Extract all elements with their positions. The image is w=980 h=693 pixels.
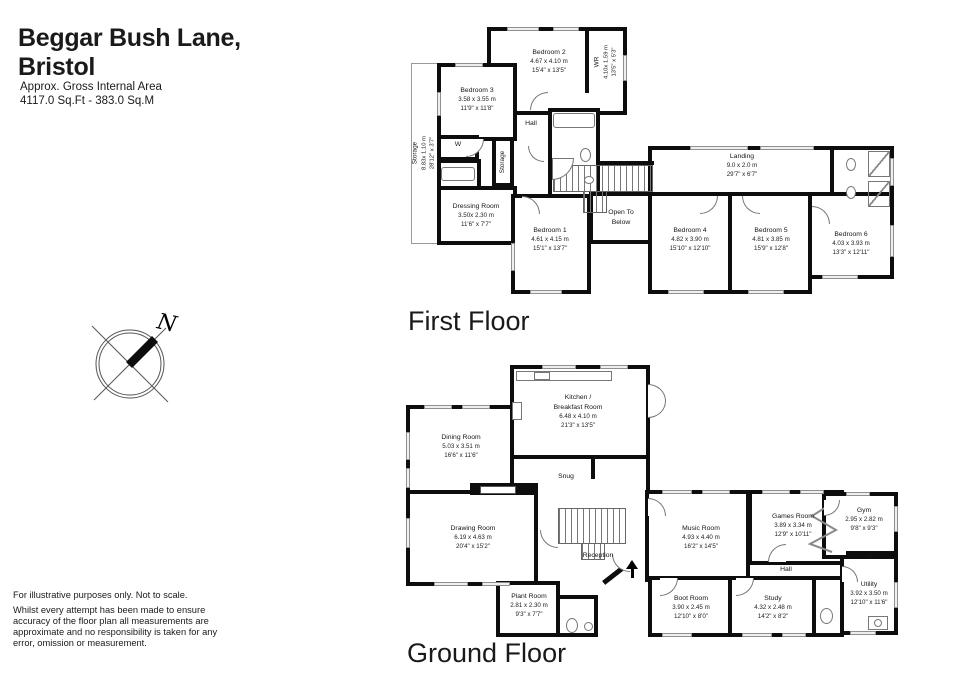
label-landing: Landing 9.0 x 2.0 m 29'7" x 6'7" <box>727 152 758 180</box>
area-subtitle-line-2: 4117.0 Sq.Ft - 383.0 Sq.M <box>20 94 162 108</box>
window <box>762 490 790 494</box>
window <box>623 55 627 81</box>
label-bedroom-5: Bedroom 5 4.81 x 3.85 m 15'9" x 12'8" <box>752 226 790 254</box>
window <box>850 631 876 635</box>
snug-wall <box>646 455 650 492</box>
label-music: Music Room 4.93 x 4.40 m 16'2" x 14'5" <box>682 524 720 552</box>
bathtub <box>441 167 475 181</box>
window <box>782 633 806 637</box>
kitchen-counter <box>516 371 612 381</box>
window <box>530 290 562 294</box>
toilet <box>566 618 578 633</box>
window <box>890 158 894 186</box>
window <box>511 243 515 271</box>
label-dining: Dining Room 5.03 x 3.51 m 16'6" x 11'6" <box>441 433 480 461</box>
entrance-arrow-icon <box>626 560 638 578</box>
window <box>462 405 490 409</box>
window <box>600 365 628 369</box>
sink <box>584 622 593 631</box>
french-door-arc <box>648 384 666 401</box>
label-open-to-below: Open To Below <box>608 208 634 228</box>
address-line-1: Beggar Bush Lane, <box>18 24 241 53</box>
room-wc-gf <box>556 595 598 637</box>
window <box>894 506 898 532</box>
label-plant: Plant Room 2.81 x 2.30 m 9'3" x 7'7" <box>510 592 548 620</box>
window <box>542 365 576 369</box>
label-wr: WR 4.10x 1.59 m 13'5" x 5'3" <box>593 45 620 79</box>
door-arc <box>528 146 544 162</box>
label-drawing: Drawing Room 6.19 x 4.63 m 20'4" x 15'2" <box>451 524 496 552</box>
bathtub <box>553 113 595 128</box>
window <box>507 27 539 31</box>
window <box>822 275 858 279</box>
label-study: Study 4.32 x 2.48 m 14'2" x 8'2" <box>754 594 792 622</box>
window <box>800 490 824 494</box>
stove <box>512 402 522 420</box>
window <box>760 146 814 150</box>
label-bedroom-4: Bedroom 4 4.82 x 3.90 m 15'10" x 12'10" <box>670 226 711 254</box>
window <box>668 290 704 294</box>
label-kitchen: Kitchen / Breakfast Room 6.48 x 4.10 m 2… <box>554 393 603 431</box>
shower-stall <box>868 151 890 177</box>
door-arc <box>540 530 558 548</box>
toilet <box>846 158 856 171</box>
label-utility: Utility 3.92 x 3.50 m 12'10" x 11'6" <box>850 580 888 608</box>
label-hall-gf: Hall <box>780 566 792 573</box>
first-floor-label: First Floor <box>408 306 530 337</box>
kitchen-sink <box>534 372 550 380</box>
window <box>846 492 870 496</box>
toilet <box>846 186 856 199</box>
area-subtitle: Approx. Gross Internal Area 4117.0 Sq.Ft… <box>20 80 162 109</box>
window <box>424 405 452 409</box>
disclaimer-body: Whilst every attempt has been made to en… <box>13 605 233 649</box>
label-bedroom-2: Bedroom 2 4.67 x 4.10 m 15'4" x 13'5" <box>530 48 568 76</box>
label-bedroom-6: Bedroom 6 4.03 x 3.93 m 13'3" x 12'11" <box>832 230 870 258</box>
label-dressing: Dressing Room 3.50x 2.30 m 11'6" x 7'7" <box>453 202 500 230</box>
french-door-arc <box>648 401 666 418</box>
window <box>662 633 692 637</box>
label-wardrobe-gf: W <box>866 553 872 560</box>
window <box>748 290 784 294</box>
window <box>890 225 894 257</box>
window <box>662 490 692 494</box>
window <box>553 27 579 31</box>
page-title: Beggar Bush Lane, Bristol <box>18 24 241 82</box>
window <box>437 92 441 116</box>
label-snug: Snug <box>558 473 574 480</box>
fireplace <box>470 483 538 495</box>
door-arc <box>466 139 484 157</box>
toilet <box>820 608 833 624</box>
shower-stall <box>868 181 890 207</box>
window <box>406 432 410 460</box>
window <box>482 582 510 586</box>
label-boot: Boot Room 3.90 x 2.45 m 12'10" x 8'0" <box>672 594 710 622</box>
label-storage-eaves: Storage 8.83x 1.10 m 28'12" x 3'7" <box>411 136 438 170</box>
window <box>690 146 748 150</box>
address-line-2: Bristol <box>18 53 241 82</box>
window <box>742 633 772 637</box>
disclaimer-line-1: For illustrative purposes only. Not to s… <box>13 590 233 601</box>
toilet <box>580 148 591 162</box>
window <box>406 468 410 488</box>
compass-icon: N <box>84 310 184 410</box>
stairs-first-floor-lower <box>583 191 607 213</box>
compass-north-label: N <box>154 310 180 338</box>
label-storage-small: Storage <box>498 151 508 173</box>
ground-floor-label: Ground Floor <box>407 638 566 669</box>
label-wardrobe-ff: W <box>455 141 461 148</box>
stairs-ground-floor <box>558 508 626 544</box>
label-gym: Gym 2.95 x 2.82 m 9'8" x 9'3" <box>845 506 883 534</box>
snug-wall-left <box>591 457 595 479</box>
label-bedroom-1: Bedroom 1 4.61 x 4.15 m 15'1" x 13'7" <box>531 226 569 254</box>
sink <box>584 176 594 184</box>
window <box>894 582 898 608</box>
area-subtitle-line-1: Approx. Gross Internal Area <box>20 80 162 94</box>
floorplan-page: Beggar Bush Lane, Bristol Approx. Gross … <box>0 0 980 693</box>
window <box>702 490 730 494</box>
fireplace-opening <box>480 486 516 494</box>
window <box>455 63 483 67</box>
window <box>406 518 410 548</box>
wr-divider-wall <box>585 27 589 93</box>
label-bedroom-3: Bedroom 3 3.58 x 3.55 m 11'9" x 11'8" <box>458 86 496 114</box>
label-hall-ff: Hall <box>525 120 537 127</box>
window <box>434 582 468 586</box>
label-games: Games Room 3.89 x 3.34 m 12'9" x 10'11" <box>772 512 814 540</box>
label-reception: Reception <box>583 552 614 559</box>
utility-sink-bowl <box>874 619 882 627</box>
disclaimer: For illustrative purposes only. Not to s… <box>13 590 233 649</box>
